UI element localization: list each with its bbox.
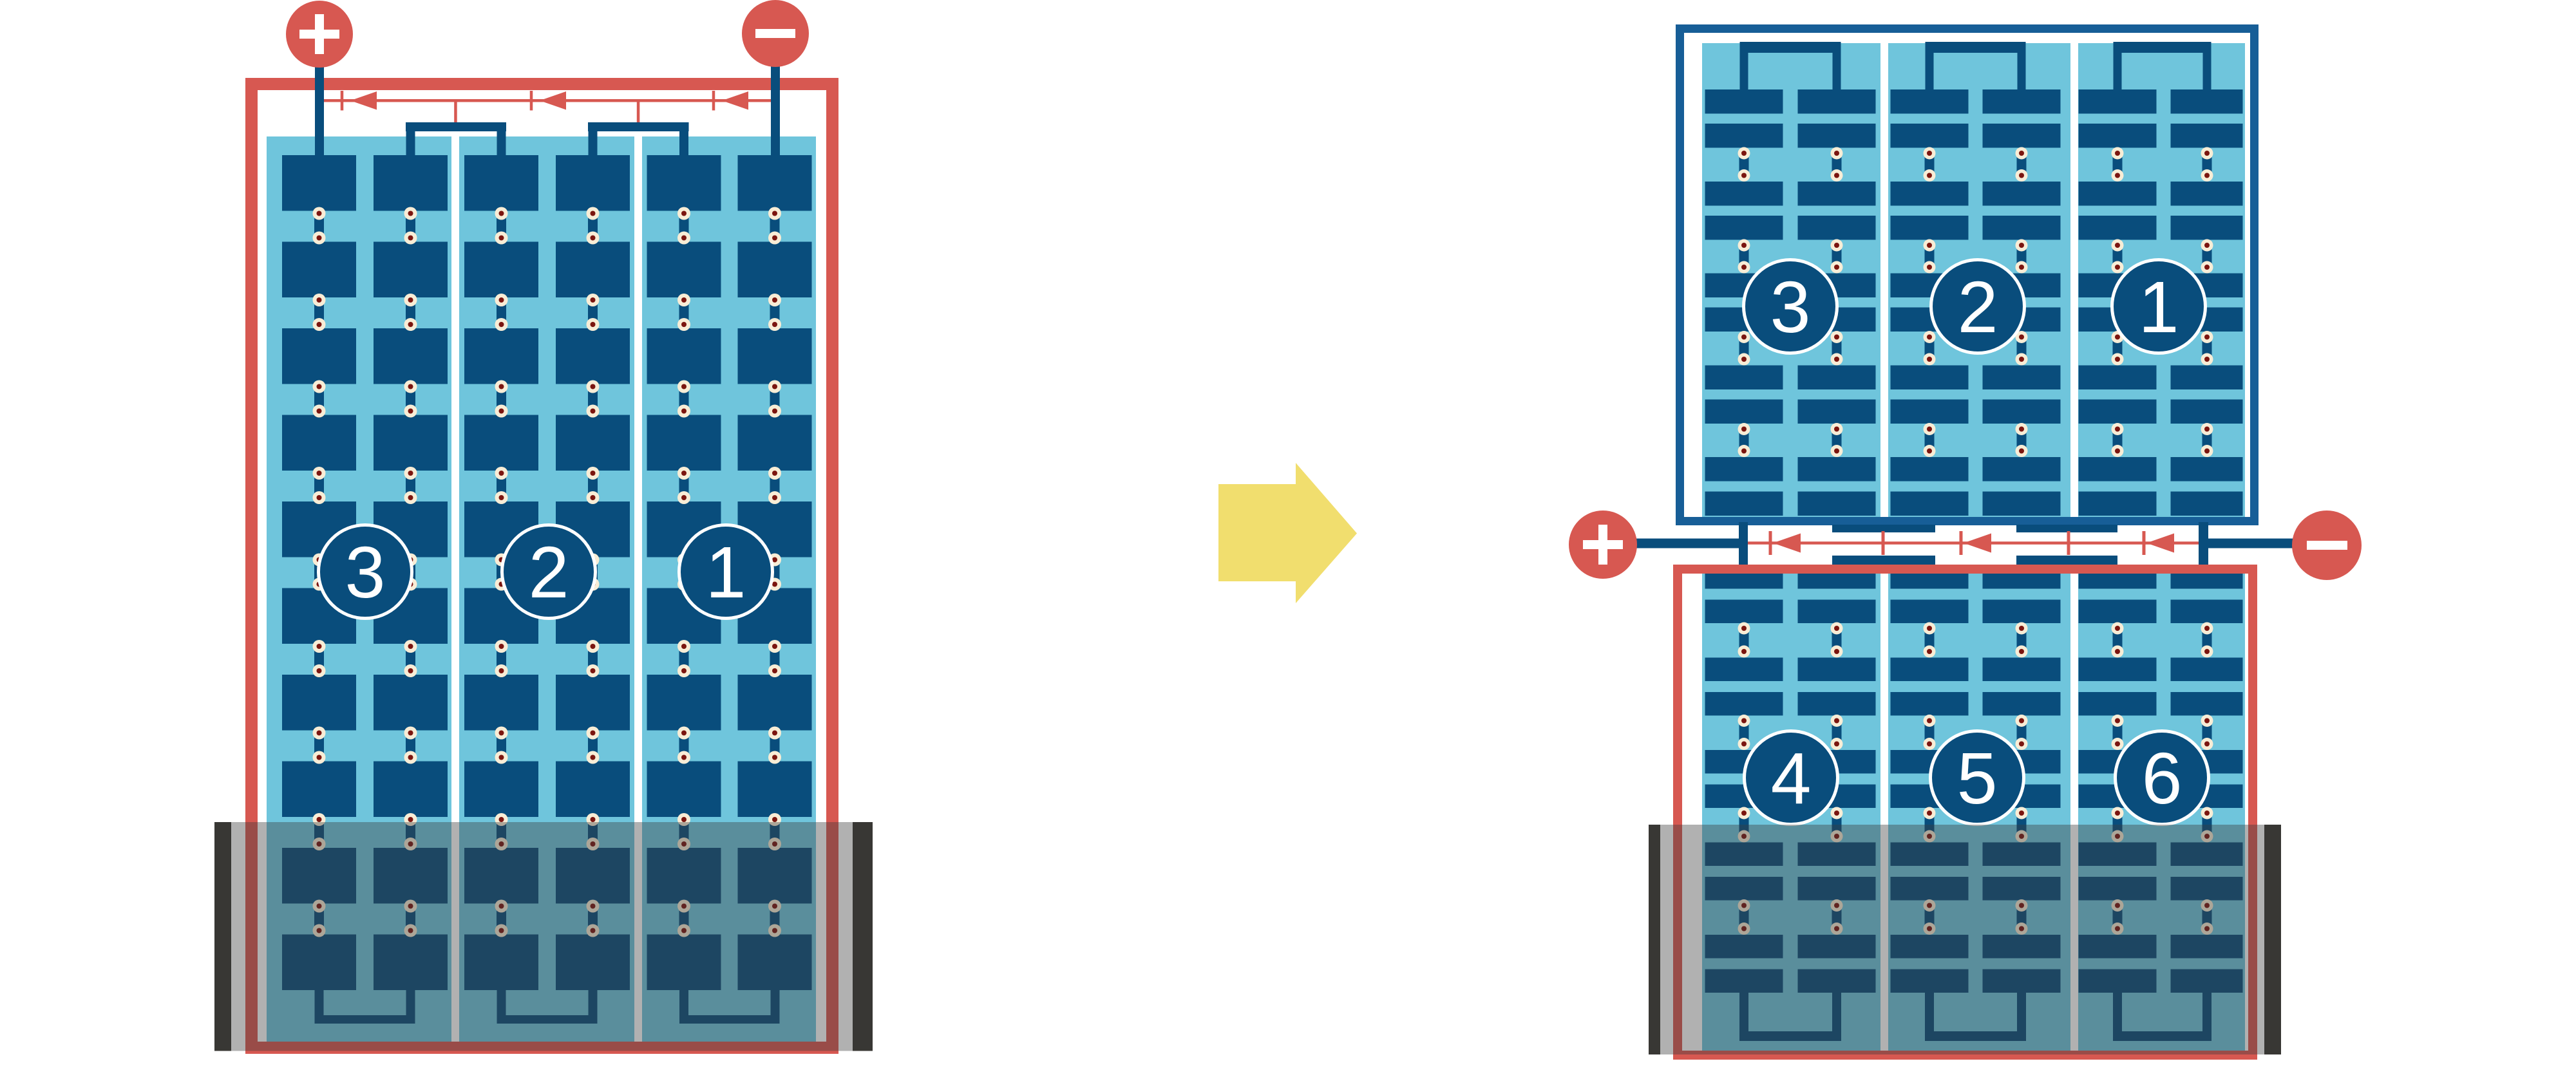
svg-text:4: 4 bbox=[1771, 738, 1812, 819]
svg-text:6: 6 bbox=[2142, 738, 2183, 819]
svg-text:1: 1 bbox=[706, 532, 746, 613]
svg-text:3: 3 bbox=[345, 532, 386, 613]
svg-text:2: 2 bbox=[529, 532, 569, 613]
svg-text:2: 2 bbox=[1958, 267, 1998, 348]
svg-text:3: 3 bbox=[1770, 267, 1811, 348]
svg-text:1: 1 bbox=[2139, 267, 2179, 348]
svg-text:5: 5 bbox=[1957, 738, 1998, 819]
